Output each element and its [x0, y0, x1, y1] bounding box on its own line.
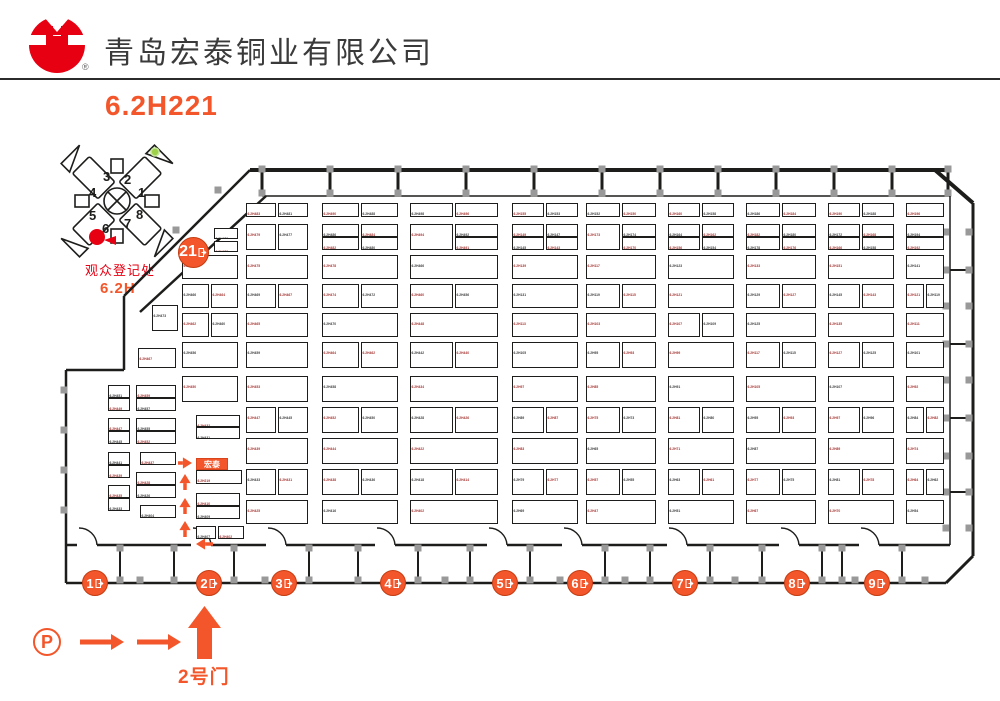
booth: 6.2H69	[512, 500, 578, 524]
booth: 6.2H96	[862, 407, 894, 433]
booth-label: 6.2H476	[215, 237, 228, 239]
booth: 6.2H87	[746, 438, 816, 464]
booth: 6.2H480	[361, 237, 398, 250]
booth: 6.2H99	[668, 342, 734, 368]
booth: 6.2H182	[746, 224, 780, 237]
booth-label: 6.2H466	[411, 264, 424, 268]
booth: 6.2H460	[410, 284, 453, 308]
booth: 6.2H402	[410, 500, 498, 524]
booth: 6.2H470	[322, 313, 398, 337]
booth-label: 6.2H178	[747, 246, 760, 250]
booth-label: 6.2H119	[587, 293, 600, 297]
booth-label: 6.2H121	[907, 293, 920, 297]
booth: 6.2H84	[906, 407, 924, 433]
booth-label: 6.2H464	[212, 293, 225, 297]
booth: 6.2H85	[586, 376, 656, 402]
booth: 6.2H186	[746, 203, 780, 217]
booth-label: 6.2H79	[513, 478, 524, 482]
booth: 6.2H115	[782, 342, 816, 368]
booth: 6.2H462	[182, 313, 209, 337]
booth: 6.2H426	[136, 485, 176, 498]
booth-label: 6.2H151	[829, 264, 842, 268]
booth: 6.2H95	[746, 407, 780, 433]
booth-label: 6.2H418	[411, 478, 424, 482]
booth-label: 6.2H407	[197, 535, 210, 539]
booth-label: 6.2H85	[587, 385, 598, 389]
booth: 6.2H89	[512, 407, 544, 433]
booth-label: 6.2H107	[829, 385, 842, 389]
booth-label: 6.2H444	[323, 447, 336, 451]
booth: 6.2H439	[246, 438, 308, 464]
booth: 6.2H456	[182, 342, 238, 368]
booth: 6.2H47	[586, 500, 656, 524]
booth: 6.2H67	[746, 500, 816, 524]
booth-label: 6.2H92	[907, 385, 918, 389]
booth: 6.2H97	[512, 376, 578, 402]
gate-marker-1: 1	[82, 570, 108, 596]
booth: 6.2H451	[108, 385, 130, 398]
booth: 6.2H63	[668, 469, 700, 495]
booth-label: 6.2H452	[323, 416, 336, 420]
booth-label: 6.2H93	[783, 416, 794, 420]
booth: 6.2H121	[906, 284, 924, 308]
booth: 6.2H160	[668, 203, 700, 217]
booth: 6.2H490	[322, 203, 359, 217]
booth-label: 6.2H445	[279, 416, 292, 420]
booth: 6.2H410	[196, 493, 240, 506]
booth-label: 6.2H80	[703, 416, 714, 420]
booth-label: 6.2H111	[907, 322, 920, 326]
booth-label: 6.2H166	[829, 246, 842, 250]
booth: 6.2H147	[546, 224, 578, 237]
gate-marker-6: 6	[567, 570, 593, 596]
booth: 6.2H486	[322, 224, 359, 237]
booth-label: 6.2H123	[669, 264, 682, 268]
booth: 6.2H467	[278, 284, 308, 308]
booth-label: 6.2H483	[247, 212, 260, 216]
booth-label: 6.2H145	[829, 293, 842, 297]
booth-label: 6.2H47	[587, 509, 598, 513]
booth: 6.2H450	[361, 407, 398, 433]
booth-label: 6.2H119	[927, 293, 940, 297]
booth: 6.2H498	[410, 203, 453, 217]
booth: 6.2H440	[455, 342, 498, 368]
booth: 6.2H166	[828, 237, 860, 250]
booth: 6.2H168	[862, 224, 894, 237]
highlighted-exhibitor-booth: 宏泰	[196, 458, 228, 470]
booth: 6.2H455	[136, 418, 176, 431]
booth: 6.2H433	[108, 498, 130, 511]
booth: 6.2H439	[108, 465, 130, 478]
booth: 6.2H54	[906, 500, 944, 524]
booth-label: 6.2H129	[747, 293, 760, 297]
booth: 6.2H442	[410, 342, 453, 368]
booth: 6.2H71	[668, 438, 734, 464]
booth: 6.2H404	[140, 505, 176, 518]
booth-label: 6.2H434	[411, 385, 424, 389]
booth-label: 6.2H70	[829, 509, 840, 513]
booth: 6.2H107	[668, 313, 700, 337]
gate-number: 8	[788, 576, 795, 591]
gate-marker-7: 7	[672, 570, 698, 596]
booth-label: 6.2H105	[513, 351, 526, 355]
booth: 6.2H109	[702, 313, 734, 337]
booth: 6.2H115	[622, 284, 656, 308]
booth: 6.2H428	[136, 472, 176, 485]
booth: 6.2H445	[108, 431, 130, 444]
booth: 6.2H457	[136, 398, 176, 411]
booth: 6.2H426	[455, 407, 498, 433]
booth-label: 6.2H472	[362, 293, 375, 297]
booth-label: 6.2H196	[907, 212, 920, 216]
gate-marker-2: 2	[196, 570, 222, 596]
booth-label: 6.2H422	[411, 447, 424, 451]
booth-label: 6.2H75	[587, 416, 598, 420]
booth: 6.2H172	[828, 224, 860, 237]
booth: 6.2H101	[906, 342, 944, 368]
gate-number: 9	[868, 576, 875, 591]
booth-label: 6.2H71	[669, 447, 680, 451]
booth-label: 6.2H481	[279, 212, 292, 216]
booth: 6.2H219	[196, 470, 242, 484]
booth-label: 6.2H95	[747, 416, 758, 420]
booth: 6.2H70	[828, 500, 894, 524]
booth-label: 6.2H467	[279, 293, 292, 297]
booth-label: 6.2H135	[829, 322, 842, 326]
booth-label: 6.2H448	[411, 322, 424, 326]
gate-marker-8: 8	[784, 570, 810, 596]
booth-label: 6.2H426	[456, 416, 469, 420]
gate-number: 21	[179, 243, 197, 261]
booth: 6.2H176	[782, 237, 816, 250]
booth: 6.2H492	[455, 224, 498, 237]
booth-label: 6.2H190	[829, 212, 842, 216]
booth-label: 6.2H460	[212, 322, 225, 326]
booth: 6.2H107	[828, 376, 894, 402]
booth-label: 6.2H117	[587, 264, 600, 268]
booth-label: 6.2H439	[109, 474, 122, 478]
booth-label: 6.2H152	[587, 212, 600, 216]
booth: 6.2H145	[512, 237, 544, 250]
booth: 6.2H149	[512, 224, 544, 237]
booth: 6.2H431	[278, 469, 308, 495]
booth-label: 6.2H436	[362, 478, 375, 482]
booth: 6.2H123	[668, 255, 734, 279]
booth-label: 6.2H457	[137, 407, 150, 411]
booth: 6.2H129	[746, 284, 780, 308]
booth-label: 6.2H141	[907, 264, 920, 268]
booth: 6.2H117	[586, 255, 656, 279]
booth: 6.2H476	[214, 228, 238, 239]
booth-label: 6.2H431	[197, 436, 210, 439]
booth-label: 6.2H450	[362, 416, 375, 420]
booth-label: 6.2H105	[747, 385, 760, 389]
booth-label: 6.2H482	[323, 246, 336, 250]
booth: 6.2H89	[828, 438, 894, 464]
booth-label: 6.2H99	[669, 351, 680, 355]
booth: 6.2H131	[512, 284, 578, 308]
booth: 6.2H62	[926, 469, 944, 495]
booth-label: 6.2H63	[669, 478, 680, 482]
booth: 6.2H488	[361, 203, 398, 217]
booth-label: 6.2H109	[703, 322, 716, 326]
booth: 6.2H105	[746, 376, 816, 402]
booth-label: 6.2H431	[279, 478, 292, 482]
booth-label: 6.2H113	[513, 322, 526, 326]
booth-label: 6.2H491	[456, 246, 469, 250]
booth-label: 6.2H452	[137, 440, 150, 444]
booth: 6.2H462	[361, 342, 398, 368]
booth-label: 6.2H456	[183, 351, 196, 355]
booth: 6.2H180	[782, 224, 816, 237]
parking-icon: P	[33, 628, 61, 656]
booth: 6.2H125	[746, 313, 816, 337]
booth: 6.2H81	[668, 407, 700, 433]
booth: 6.2H97	[828, 407, 860, 433]
booth: 6.2H158	[702, 203, 734, 217]
gate-marker-9: 9	[864, 570, 890, 596]
booth: 6.2H444	[322, 438, 398, 464]
booth: 6.2H95	[586, 342, 620, 368]
booth: 6.2H178	[746, 237, 780, 250]
booth: 6.2H93	[622, 342, 656, 368]
booth-label: 6.2H469	[247, 293, 260, 297]
booth: 6.2H456	[455, 284, 498, 308]
booth-label: 6.2H472	[215, 250, 228, 252]
booth: 6.2H55	[622, 469, 656, 495]
booth-label: 6.2H131	[513, 293, 526, 297]
booth: 6.2H57	[586, 469, 620, 495]
booth: 6.2H135	[828, 313, 894, 337]
booth: 6.2H425	[246, 500, 308, 524]
booth-label: 6.2H466	[183, 293, 196, 297]
booth: 6.2H75	[586, 407, 620, 433]
booth: 6.2H164	[668, 224, 700, 237]
booth-label: 6.2H55	[623, 478, 634, 482]
booth: 6.2H121	[668, 284, 734, 308]
booth-label: 6.2H87	[547, 416, 558, 420]
booth: 6.2H465	[246, 313, 308, 337]
booth: 6.2H75	[782, 469, 816, 495]
booth: 6.2H453	[246, 376, 308, 402]
booth: 6.2H434	[410, 376, 498, 402]
booth: 6.2H170	[622, 237, 656, 250]
booth: 6.2H77	[746, 469, 780, 495]
booth-label: 6.2H450	[183, 385, 196, 389]
booth: 6.2H494	[410, 224, 453, 250]
booth-label: 6.2H176	[783, 246, 796, 250]
booth-label: 6.2H139	[513, 264, 526, 268]
booth: 6.2H496	[455, 203, 498, 217]
booth: 6.2H447	[108, 418, 130, 431]
booth: 6.2H484	[361, 224, 398, 237]
booth-label: 6.2H498	[411, 212, 424, 216]
gate-number: 7	[676, 576, 683, 591]
booth-label: 6.2H155	[513, 212, 526, 216]
booth-label: 6.2H81	[669, 416, 680, 420]
booth-label: 6.2H83	[513, 447, 524, 451]
booth: 6.2H81	[828, 469, 860, 495]
booth-label: 6.2H416	[323, 509, 336, 513]
booth-label: 6.2H125	[863, 351, 876, 355]
booth: 6.2H478	[322, 255, 398, 279]
booth-label: 6.2H433	[109, 507, 122, 511]
booth: 6.2H188	[862, 203, 894, 217]
gate-number: 6	[571, 576, 578, 591]
booth-label: 6.2H81	[829, 478, 840, 482]
booth: 6.2H450	[182, 376, 238, 402]
booth-label: 6.2H62	[927, 478, 938, 482]
booth: 6.2H458	[322, 376, 398, 402]
booth: 6.2H445	[278, 407, 308, 433]
booth-label: 6.2H87	[747, 447, 758, 451]
booth: 6.2H483	[246, 203, 276, 217]
booth: 6.2H481	[278, 203, 308, 217]
gate-marker-3: 3	[271, 570, 297, 596]
booth-label: 6.2H77	[547, 478, 558, 482]
gate-marker-21: 21	[178, 237, 209, 268]
booth-label: 6.2H54	[907, 509, 918, 513]
booth: 6.2H466	[410, 255, 498, 279]
booth-label: 6.2H404	[141, 514, 154, 518]
booth: 6.2H154	[702, 237, 734, 250]
booth-label: 6.2H488	[362, 212, 375, 216]
booth: 6.2H464	[322, 342, 359, 368]
booth: 6.2H452	[136, 431, 176, 444]
booth: 6.2H111	[906, 313, 944, 337]
booth: 6.2H158	[862, 237, 894, 250]
booth: 6.2H80	[702, 407, 734, 433]
gate-marker-4: 4	[380, 570, 406, 596]
booth-label: 6.2H479	[247, 233, 260, 237]
booth-label: 6.2H188	[863, 212, 876, 216]
booth-label: 6.2H97	[829, 416, 840, 420]
booth-label: 6.2H125	[747, 322, 760, 326]
booth-label: 6.2H170	[623, 246, 636, 250]
booth-label: 6.2H127	[783, 293, 796, 297]
booth: 6.2H447	[246, 407, 276, 433]
booth: 6.2H79	[512, 469, 544, 495]
booth-label: 6.2H184	[783, 212, 796, 216]
booth: 6.2H51	[668, 500, 734, 524]
booth-label: 6.2H97	[513, 385, 524, 389]
booth: 6.2H119	[586, 284, 620, 308]
booth: 6.2H87	[546, 407, 578, 433]
booth-label: 6.2H115	[623, 293, 636, 297]
booth: 6.2H436	[361, 469, 398, 495]
booth-label: 6.2H77	[747, 478, 758, 482]
booth: 6.2H435	[108, 485, 130, 498]
booth-label: 6.2H462	[362, 351, 375, 355]
booth: 6.2H448	[410, 313, 498, 337]
booth-label: 6.2H51	[669, 509, 680, 513]
booth: 6.2H74	[906, 438, 944, 464]
booth-label: 6.2H467	[139, 357, 152, 361]
booth-label: 6.2H69	[513, 509, 524, 513]
booth-label: 6.2H186	[747, 212, 760, 216]
booth: 6.2H422	[410, 438, 498, 464]
booth: 6.2H103	[586, 313, 656, 337]
booth-label: 6.2H414	[456, 478, 469, 482]
booth-label: 6.2H153	[547, 212, 560, 216]
booth-label: 6.2H460	[411, 293, 424, 297]
booth-label: 6.2H61	[703, 478, 714, 482]
booth: 6.2H466	[182, 284, 209, 308]
booth: 6.2H173	[586, 224, 620, 250]
booth: 6.2H78	[862, 469, 894, 495]
booth: 6.2H156	[668, 237, 700, 250]
booth-label: 6.2H445	[109, 440, 122, 444]
booth-label: 6.2H89	[829, 447, 840, 451]
booth-label: 6.2H67	[747, 509, 758, 513]
booth-label: 6.2H474	[323, 293, 336, 297]
booth: 6.2H143	[546, 237, 578, 250]
booth: 6.2H192	[906, 237, 944, 250]
booth-label: 6.2H133	[747, 264, 760, 268]
booth-label: 6.2H127	[829, 351, 842, 355]
booth-label: 6.2H158	[863, 246, 876, 250]
booth: 6.2H407	[196, 526, 216, 539]
booth: 6.2H433	[246, 469, 276, 495]
booth-label: 6.2H480	[362, 246, 375, 250]
booth: 6.2H61	[702, 469, 734, 495]
booth: 6.2H119	[926, 284, 944, 308]
booth: 6.2H155	[512, 203, 544, 217]
booth: 6.2H418	[410, 469, 453, 495]
booth-label: 6.2H96	[863, 416, 874, 420]
booth: 6.2H65	[586, 438, 656, 464]
booth: 6.2H127	[828, 342, 860, 368]
booth-label: 6.2H73	[623, 416, 634, 420]
booth-label: 6.2H82	[927, 416, 938, 420]
booth-label: 6.2H95	[587, 351, 598, 355]
booth: 6.2H152	[586, 203, 620, 217]
booth: 6.2H196	[906, 203, 944, 217]
gate-number: 2	[200, 576, 207, 591]
booth-label: 6.2H173	[587, 233, 600, 237]
booth-label: 6.2H145	[513, 246, 526, 250]
booth: 6.2H474	[322, 284, 359, 308]
booth: 6.2H482	[322, 237, 359, 250]
booth: 6.2H139	[512, 255, 578, 279]
booth-label: 6.2H158	[703, 212, 716, 216]
gate-number: 4	[384, 576, 391, 591]
booth-label: 6.2H75	[783, 478, 794, 482]
booth: 6.2H127	[782, 284, 816, 308]
booth-label: 6.2H462	[183, 322, 196, 326]
booth-label: 6.2H121	[669, 293, 682, 297]
booth-label: 6.2H143	[547, 246, 560, 250]
booth: 6.2H64	[906, 469, 924, 495]
booth: 6.2H431	[196, 427, 240, 439]
booth: 6.2H432	[196, 415, 240, 427]
booth: 6.2H441	[108, 452, 130, 465]
booth-label: 6.2H93	[623, 351, 634, 355]
booth-label: 6.2H402	[219, 535, 232, 539]
booth-label: 6.2H473	[153, 314, 166, 318]
booth: 6.2H82	[926, 407, 944, 433]
booth-label: 6.2H101	[907, 351, 920, 355]
gate-2-entrance-label: 2号门	[178, 662, 230, 689]
gate-number: 5	[496, 576, 503, 591]
gate-number: 3	[275, 576, 282, 591]
booth: 6.2H92	[906, 376, 944, 402]
booth: 6.2H145	[828, 284, 860, 308]
booth: 6.2H414	[455, 469, 498, 495]
booth-label: 6.2H74	[907, 447, 918, 451]
booth: 6.2H409	[196, 506, 240, 519]
booth: 6.2H402	[218, 526, 244, 539]
